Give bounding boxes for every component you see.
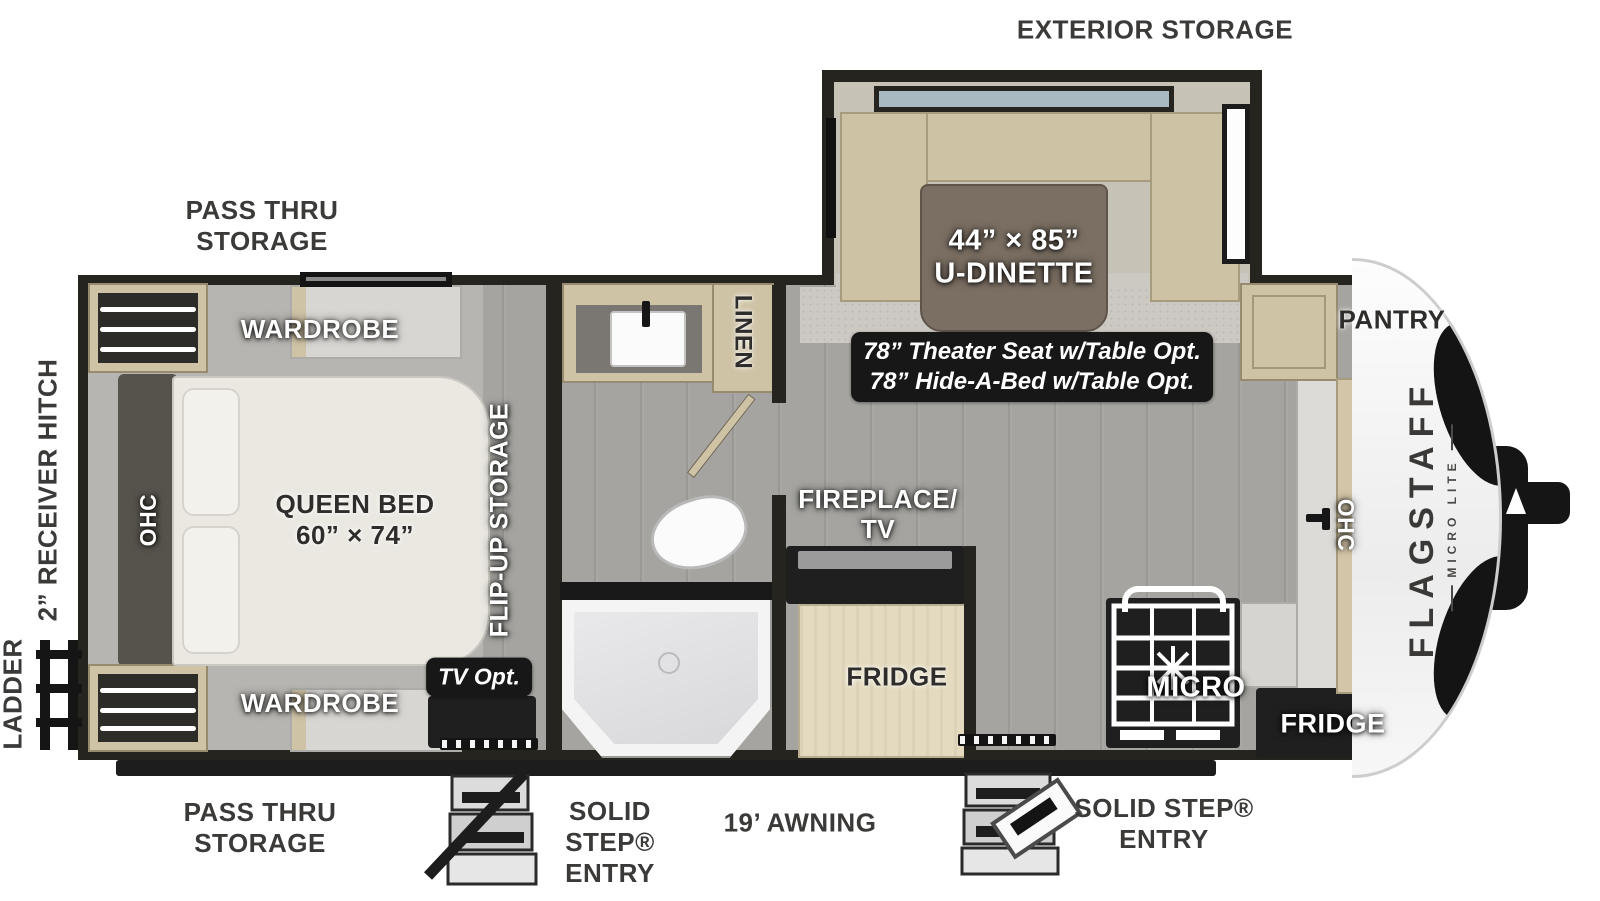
label-solid-step-left: SOLID STEP® ENTRY — [544, 796, 676, 890]
shower-header — [560, 582, 772, 600]
queen-bed-line1: QUEEN BED — [275, 489, 434, 520]
label-u-dinette: 44” × 85” U-DINETTE — [934, 225, 1093, 292]
label-fridge-front: FRIDGE — [1280, 708, 1385, 739]
label-wardrobe-top: WARDROBE — [241, 315, 400, 345]
skylight — [874, 86, 1174, 112]
label-pass-thru-top: PASS THRU STORAGE — [142, 195, 382, 257]
dinette-bench-left — [840, 112, 928, 302]
pantry-cabinet — [1240, 283, 1338, 381]
shower-pan — [560, 598, 772, 758]
vanity-cabinet — [562, 283, 714, 383]
stove-handle — [1122, 586, 1226, 612]
label-ohc-left: OHC — [135, 494, 161, 547]
kitchen-faucet-stem — [1322, 508, 1330, 530]
bath-living-wall-top — [772, 285, 786, 403]
label-exterior-storage: EXTERIOR STORAGE — [990, 14, 1320, 45]
label-pass-thru-bottom: PASS THRU STORAGE — [140, 797, 380, 859]
label-micro: MICRO — [1146, 671, 1245, 704]
label-ohc-right: OHC — [1333, 499, 1359, 552]
label-flip-up-storage: FLIP-UP STORAGE — [486, 403, 515, 637]
u-dinette-line2: U-DINETTE — [934, 258, 1093, 291]
closet-top-left — [88, 283, 208, 373]
label-linen: LINEN — [728, 295, 757, 370]
label-awning: 19’ AWNING — [724, 807, 877, 838]
slideout-window-left — [826, 118, 836, 238]
option-line2: 78” Hide-A-Bed w/Table Opt. — [863, 367, 1201, 397]
fireplace-tv-console — [786, 546, 966, 604]
brand-rule-right — [1451, 424, 1453, 450]
bed-bath-wall — [546, 285, 562, 750]
label-receiver-hitch: 2” RECEIVER HITCH — [32, 359, 63, 622]
label-dinette-options: 78” Theater Seat w/Table Opt. 78” Hide-A… — [851, 332, 1213, 402]
floorplan-canvas: EXTERIOR STORAGE PASS THRU STORAGE 2” RE… — [0, 0, 1600, 901]
label-fridge-island: FRIDGE — [846, 661, 947, 692]
bed-pillow-top — [182, 388, 240, 516]
entry-threshold-left — [440, 738, 538, 750]
label-solid-step-right: SOLID STEP® ENTRY — [1034, 793, 1294, 855]
entry-threshold-right — [958, 734, 1056, 746]
bed-pillow-bottom — [182, 526, 240, 654]
brand-rule-left — [1451, 586, 1453, 612]
queen-bed-line2: 60” × 74” — [275, 520, 434, 551]
label-queen-bed: QUEEN BED 60” × 74” — [275, 489, 434, 551]
bath-living-wall-bottom — [772, 495, 786, 758]
closet-bottom-left — [88, 664, 208, 752]
brand-sub-text: MICRO LITE — [1445, 458, 1459, 577]
brand-subtitle: MICRO LITE — [1445, 378, 1459, 659]
label-fireplace-tv: FIREPLACE/ TV — [791, 485, 966, 545]
slideout-window-right — [1222, 104, 1250, 264]
coupler-icon — [1506, 488, 1526, 514]
label-tv-opt: TV Opt. — [426, 658, 532, 697]
u-dinette-line1: 44” × 85” — [934, 225, 1093, 258]
bedroom-window — [300, 272, 452, 287]
brand-name: FLAGSTAFF — [1405, 378, 1439, 659]
option-line1: 78” Theater Seat w/Table Opt. — [863, 337, 1201, 367]
label-wardrobe-bottom: WARDROBE — [241, 689, 400, 719]
island-side-wall — [964, 546, 976, 758]
entry-steps-left-icon — [420, 772, 550, 887]
ladder-icon — [26, 636, 88, 754]
label-pantry: PANTRY — [1339, 304, 1446, 335]
brand-logo: FLAGSTAFF MICRO LITE — [1405, 378, 1459, 659]
label-ladder: LADDER — [0, 638, 29, 749]
